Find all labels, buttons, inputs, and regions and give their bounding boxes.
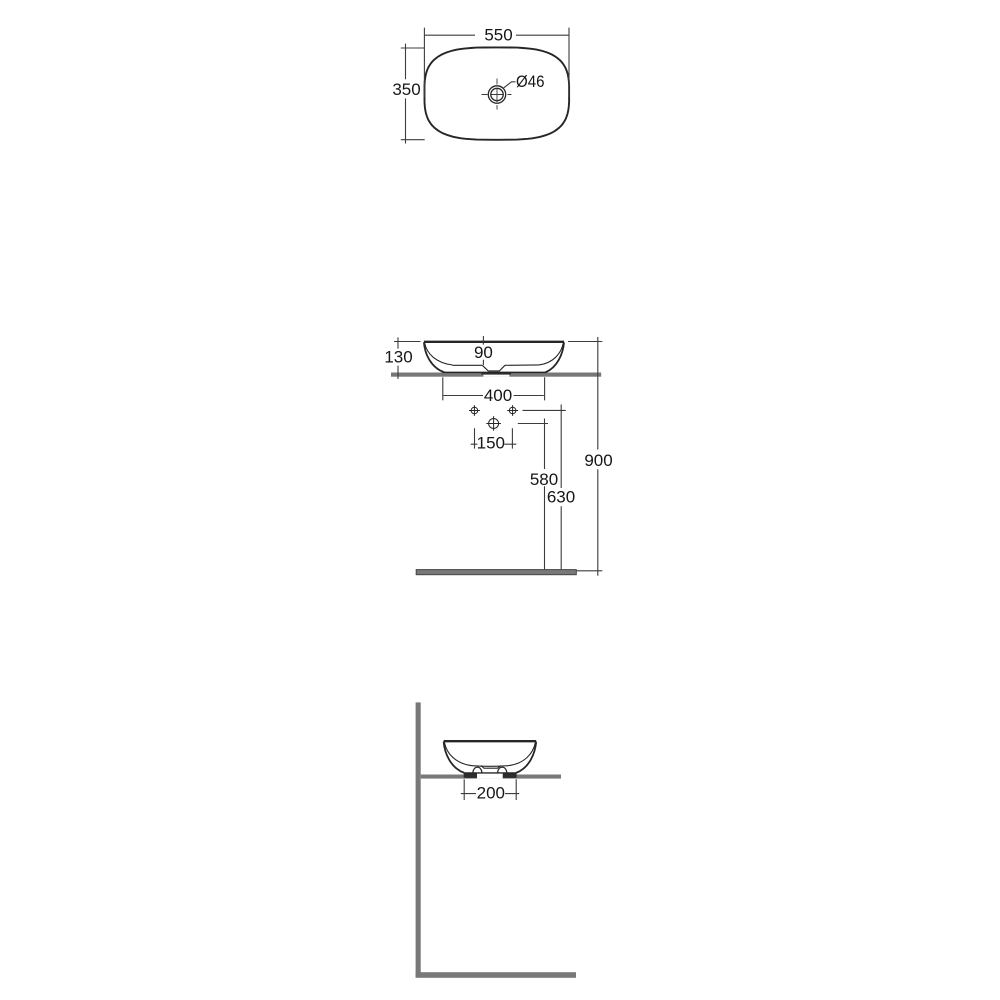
- svg-text:630: 630: [547, 488, 575, 507]
- svg-text:200: 200: [477, 784, 505, 803]
- svg-text:350: 350: [392, 80, 420, 99]
- svg-text:130: 130: [384, 348, 412, 367]
- svg-text:550: 550: [484, 26, 512, 45]
- svg-text:150: 150: [477, 433, 505, 452]
- svg-text:400: 400: [484, 386, 512, 405]
- svg-text:90: 90: [474, 343, 493, 362]
- svg-text:580: 580: [530, 470, 558, 489]
- svg-text:Ø46: Ø46: [516, 72, 545, 91]
- svg-text:900: 900: [584, 451, 612, 470]
